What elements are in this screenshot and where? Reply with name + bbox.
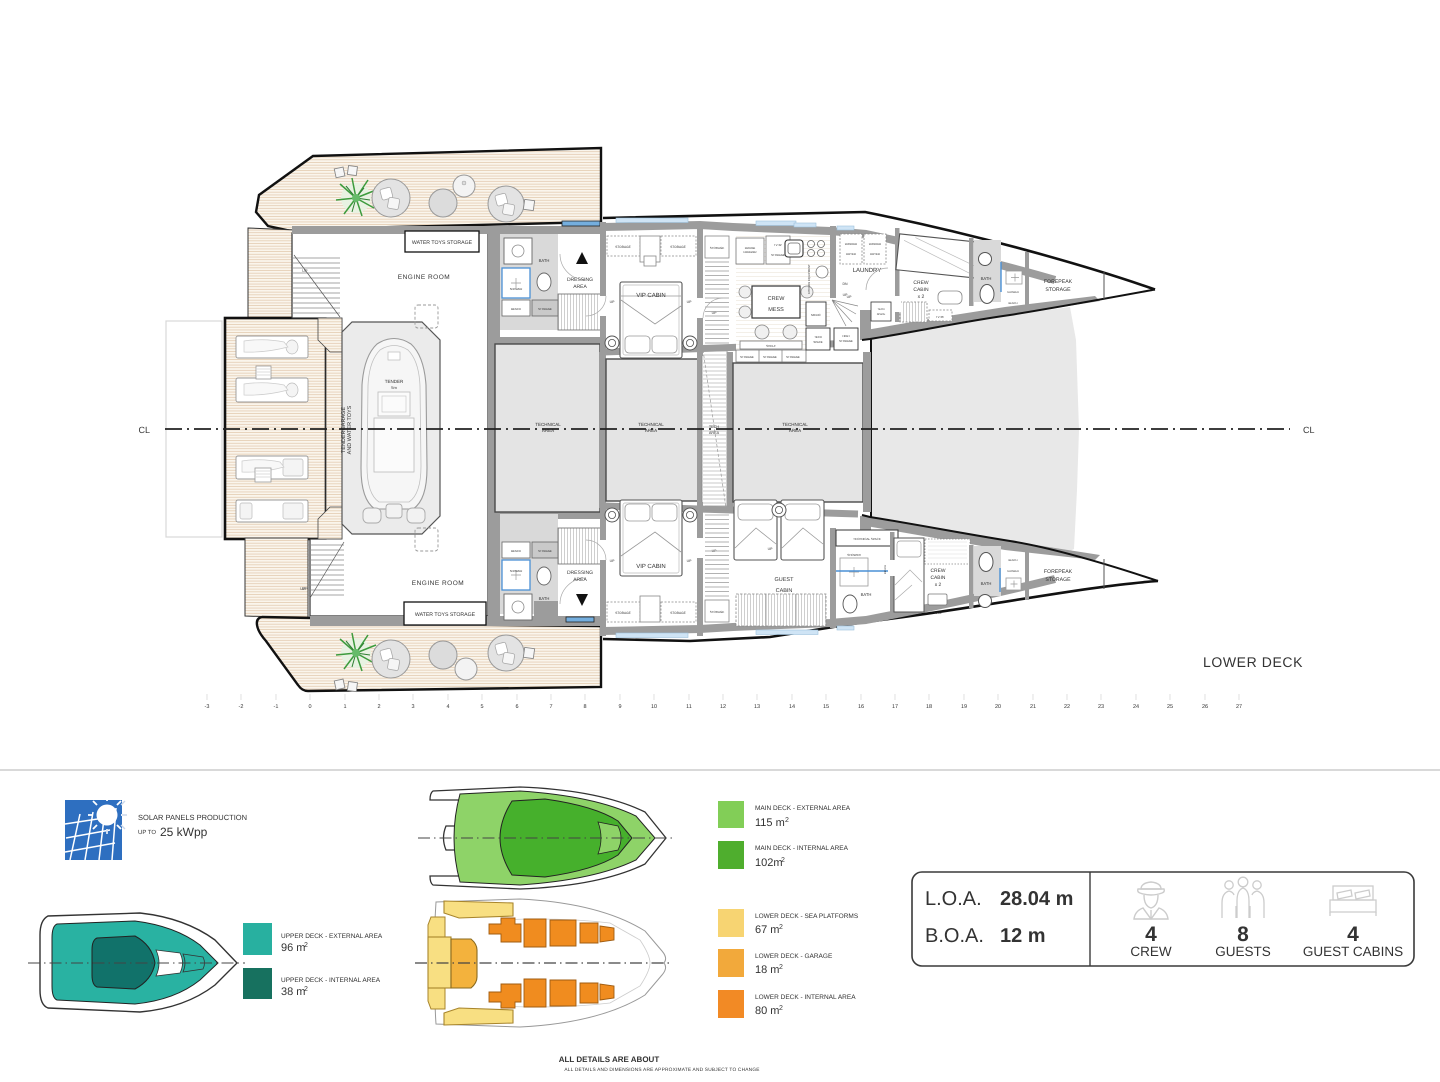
svg-text:7: 7 xyxy=(549,704,552,710)
svg-text:12: 12 xyxy=(720,704,726,710)
svg-text:MAIN DECK - EXTERNAL AREA: MAIN DECK - EXTERNAL AREA xyxy=(755,805,851,812)
svg-text:CREW: CREW xyxy=(1130,944,1172,959)
svg-text:5: 5 xyxy=(480,704,483,710)
svg-text:38 m: 38 m xyxy=(281,986,305,998)
svg-text:2: 2 xyxy=(779,964,783,971)
svg-text:KITCHEN EQUIPMENT: KITCHEN EQUIPMENT xyxy=(807,264,811,294)
svg-text:SPACE: SPACE xyxy=(877,313,886,316)
svg-text:AREA: AREA xyxy=(573,284,587,290)
svg-text:STORAGE: STORAGE xyxy=(670,245,686,249)
svg-text:-3: -3 xyxy=(205,704,210,710)
svg-text:BATH: BATH xyxy=(539,596,550,601)
svg-text:STORAGE: STORAGE xyxy=(615,611,631,615)
svg-text:CABIN: CABIN xyxy=(913,287,929,293)
svg-text:FOREPEAK: FOREPEAK xyxy=(1044,279,1073,285)
svg-text:HIGH: HIGH xyxy=(843,334,850,338)
svg-text:STORAGE: STORAGE xyxy=(1045,577,1071,583)
svg-text:CABIN: CABIN xyxy=(931,575,946,581)
svg-text:x 2: x 2 xyxy=(918,294,925,300)
svg-text:MAIN DECK - INTERNAL AREA: MAIN DECK - INTERNAL AREA xyxy=(755,845,849,852)
svg-text:BATH: BATH xyxy=(539,258,550,263)
svg-text:TECHNICAL: TECHNICAL xyxy=(535,422,561,427)
svg-text:102m: 102m xyxy=(755,857,783,869)
svg-text:STORAGE: STORAGE xyxy=(763,355,777,359)
svg-text:8: 8 xyxy=(1237,923,1249,946)
svg-text:5m: 5m xyxy=(391,385,397,390)
svg-text:0: 0 xyxy=(308,704,311,710)
svg-text:SHOWER: SHOWER xyxy=(510,569,523,573)
svg-text:SHOWER: SHOWER xyxy=(510,287,523,291)
svg-text:12 m: 12 m xyxy=(1000,925,1046,947)
svg-text:x 2: x 2 xyxy=(935,582,942,588)
svg-text:2: 2 xyxy=(781,857,785,864)
svg-text:BENCH: BENCH xyxy=(1008,302,1017,305)
svg-text:ENGINE ROOM: ENGINE ROOM xyxy=(412,580,464,587)
svg-text:UP TO: UP TO xyxy=(138,829,156,836)
svg-text:19: 19 xyxy=(961,704,967,710)
svg-text:STORAGE: STORAGE xyxy=(786,355,800,359)
svg-text:ENGINE ROOM: ENGINE ROOM xyxy=(398,274,450,281)
svg-text:SHELF: SHELF xyxy=(766,344,776,348)
svg-text:BENCH: BENCH xyxy=(1008,559,1017,562)
svg-text:13: 13 xyxy=(754,704,760,710)
svg-text:VIP CABIN: VIP CABIN xyxy=(636,292,666,299)
svg-text:VIP CABIN: VIP CABIN xyxy=(636,563,666,570)
svg-text:TENDER: TENDER xyxy=(385,379,404,384)
svg-text:TECHNICAL SPACE: TECHNICAL SPACE xyxy=(853,537,881,541)
svg-text:STORAGE: STORAGE xyxy=(1045,287,1071,293)
svg-text:67 m: 67 m xyxy=(755,924,779,936)
svg-text:WATER TOYS STORAGE: WATER TOYS STORAGE xyxy=(412,240,473,246)
svg-text:4: 4 xyxy=(1347,923,1359,946)
svg-text:4: 4 xyxy=(1145,923,1157,946)
svg-text:25 kWpp: 25 kWpp xyxy=(160,825,208,839)
svg-text:UPPER DECK - INTERNAL AREA: UPPER DECK - INTERNAL AREA xyxy=(281,977,381,984)
svg-text:17: 17 xyxy=(892,704,898,710)
svg-text:2: 2 xyxy=(304,942,308,949)
svg-text:LOWER DECK - INTERNAL AREA: LOWER DECK - INTERNAL AREA xyxy=(755,994,856,1001)
svg-text:MEDIC: MEDIC xyxy=(811,313,822,317)
svg-text:STORAGE: STORAGE xyxy=(839,339,853,343)
svg-text:STORAGE: STORAGE xyxy=(670,611,686,615)
svg-text:BENCH: BENCH xyxy=(511,307,521,311)
svg-text:L.O.A.: L.O.A. xyxy=(925,888,982,910)
svg-text:SPACE: SPACE xyxy=(813,340,822,344)
svg-text:SHOWER: SHOWER xyxy=(1007,570,1019,573)
svg-text:GUEST: GUEST xyxy=(775,577,795,583)
svg-text:STORAGE: STORAGE xyxy=(615,245,631,249)
svg-text:ALL DETAILS ARE ABOUT: ALL DETAILS ARE ABOUT xyxy=(559,1055,660,1064)
svg-text:GUEST CABINS: GUEST CABINS xyxy=(1303,944,1403,959)
svg-text:10: 10 xyxy=(651,704,657,710)
svg-text:BATH: BATH xyxy=(981,276,992,281)
svg-text:TV 36': TV 36' xyxy=(936,315,944,319)
svg-text:CREW: CREW xyxy=(913,280,929,286)
svg-text:9: 9 xyxy=(618,704,621,710)
svg-text:BATH: BATH xyxy=(861,592,872,597)
svg-text:6: 6 xyxy=(515,704,518,710)
svg-text:14: 14 xyxy=(789,704,795,710)
svg-text:TECN: TECN xyxy=(877,308,884,311)
svg-text:-2: -2 xyxy=(239,704,244,710)
svg-text:21: 21 xyxy=(1030,704,1036,710)
svg-text:AREA: AREA xyxy=(573,577,587,583)
svg-text:DRYER: DRYER xyxy=(846,252,856,256)
svg-text:DRESSING: DRESSING xyxy=(567,570,593,576)
svg-text:GUESTS: GUESTS xyxy=(1215,944,1271,959)
svg-text:TV 32': TV 32' xyxy=(774,243,782,247)
svg-text:LOWER DECK - GARAGE: LOWER DECK - GARAGE xyxy=(755,953,833,960)
svg-text:26: 26 xyxy=(1202,704,1208,710)
svg-text:2: 2 xyxy=(304,986,308,993)
svg-text:UP: UP xyxy=(847,295,853,299)
svg-text:-1: -1 xyxy=(274,704,279,710)
svg-text:1: 1 xyxy=(343,704,346,710)
svg-text:2: 2 xyxy=(377,704,380,710)
svg-text:BENCH: BENCH xyxy=(884,565,887,574)
svg-text:SOLAR PANELS PRODUCTION: SOLAR PANELS PRODUCTION xyxy=(138,813,247,822)
svg-text:CABIN: CABIN xyxy=(776,588,793,594)
svg-text:WASHER: WASHER xyxy=(869,242,881,246)
svg-text:STORAGE: STORAGE xyxy=(538,549,552,553)
svg-text:CREW: CREW xyxy=(931,568,946,574)
svg-text:TV 24': TV 24' xyxy=(934,611,942,615)
svg-text:15: 15 xyxy=(823,704,829,710)
svg-text:18 m: 18 m xyxy=(755,964,779,976)
svg-text:FREEZER: FREEZER xyxy=(743,250,756,254)
svg-text:96 m: 96 m xyxy=(281,942,305,954)
svg-text:DN: DN xyxy=(842,282,848,286)
svg-text:CL: CL xyxy=(1303,425,1315,435)
svg-text:27: 27 xyxy=(1236,704,1242,710)
svg-text:TECHNICAL: TECHNICAL xyxy=(782,422,808,427)
svg-text:UPPER DECK - EXTERNAL AREA: UPPER DECK - EXTERNAL AREA xyxy=(281,933,383,940)
svg-text:CREW: CREW xyxy=(768,296,786,302)
svg-text:20: 20 xyxy=(995,704,1001,710)
svg-text:DRYER: DRYER xyxy=(870,252,880,256)
svg-text:STORAGE: STORAGE xyxy=(771,253,785,257)
svg-text:CL: CL xyxy=(138,425,150,435)
svg-text:11: 11 xyxy=(686,704,692,710)
svg-text:BATH: BATH xyxy=(981,581,992,586)
svg-text:STORAGE: STORAGE xyxy=(710,610,725,614)
svg-text:3: 3 xyxy=(411,704,414,710)
svg-text:UP: UP xyxy=(610,559,616,563)
svg-text:2: 2 xyxy=(785,817,789,824)
svg-text:AREA: AREA xyxy=(709,431,720,435)
svg-text:TECH: TECH xyxy=(814,335,822,339)
svg-text:115 m: 115 m xyxy=(755,817,785,829)
svg-text:LOWER DECK - SEA PLATFORMS: LOWER DECK - SEA PLATFORMS xyxy=(755,913,859,920)
svg-text:DRESSING: DRESSING xyxy=(567,277,593,283)
svg-text:UP: UP xyxy=(610,300,616,304)
svg-text:BENCH: BENCH xyxy=(511,549,521,553)
svg-text:SHOWER: SHOWER xyxy=(1007,291,1019,294)
svg-text:STORAGE: STORAGE xyxy=(538,307,552,311)
svg-text:23: 23 xyxy=(1098,704,1104,710)
svg-text:STORAGE: STORAGE xyxy=(740,355,754,359)
svg-text:STORAGE: STORAGE xyxy=(710,246,725,250)
svg-text:LOWER DECK: LOWER DECK xyxy=(1203,654,1303,670)
svg-text:2: 2 xyxy=(779,1005,783,1012)
svg-text:18: 18 xyxy=(926,704,932,710)
svg-text:SHOWER: SHOWER xyxy=(847,553,861,557)
svg-text:FOREPEAK: FOREPEAK xyxy=(1044,569,1073,575)
svg-text:16: 16 xyxy=(858,704,864,710)
svg-text:28.04 m: 28.04 m xyxy=(1000,888,1073,910)
svg-text:4: 4 xyxy=(446,704,449,710)
svg-text:2: 2 xyxy=(779,924,783,931)
svg-text:8: 8 xyxy=(583,704,586,710)
svg-text:TECHNICAL: TECHNICAL xyxy=(638,422,664,427)
svg-text:22: 22 xyxy=(1064,704,1070,710)
svg-text:MESS: MESS xyxy=(768,307,784,313)
svg-text:24: 24 xyxy=(1133,704,1139,710)
svg-text:80 m: 80 m xyxy=(755,1005,779,1017)
svg-text:UP: UP xyxy=(768,547,774,551)
svg-text:UP: UP xyxy=(687,300,693,304)
svg-text:UP: UP xyxy=(300,586,306,591)
svg-text:B.O.A.: B.O.A. xyxy=(925,925,984,947)
svg-text:ALL DETAILS AND DIMENSIONS ARE: ALL DETAILS AND DIMENSIONS ARE APPROXIMA… xyxy=(564,1067,759,1073)
svg-text:25: 25 xyxy=(1167,704,1173,710)
svg-text:WASHER: WASHER xyxy=(845,242,857,246)
svg-text:UP: UP xyxy=(687,559,693,563)
svg-text:WATER TOYS STORAGE: WATER TOYS STORAGE xyxy=(415,612,476,618)
svg-text:UP: UP xyxy=(302,268,308,273)
